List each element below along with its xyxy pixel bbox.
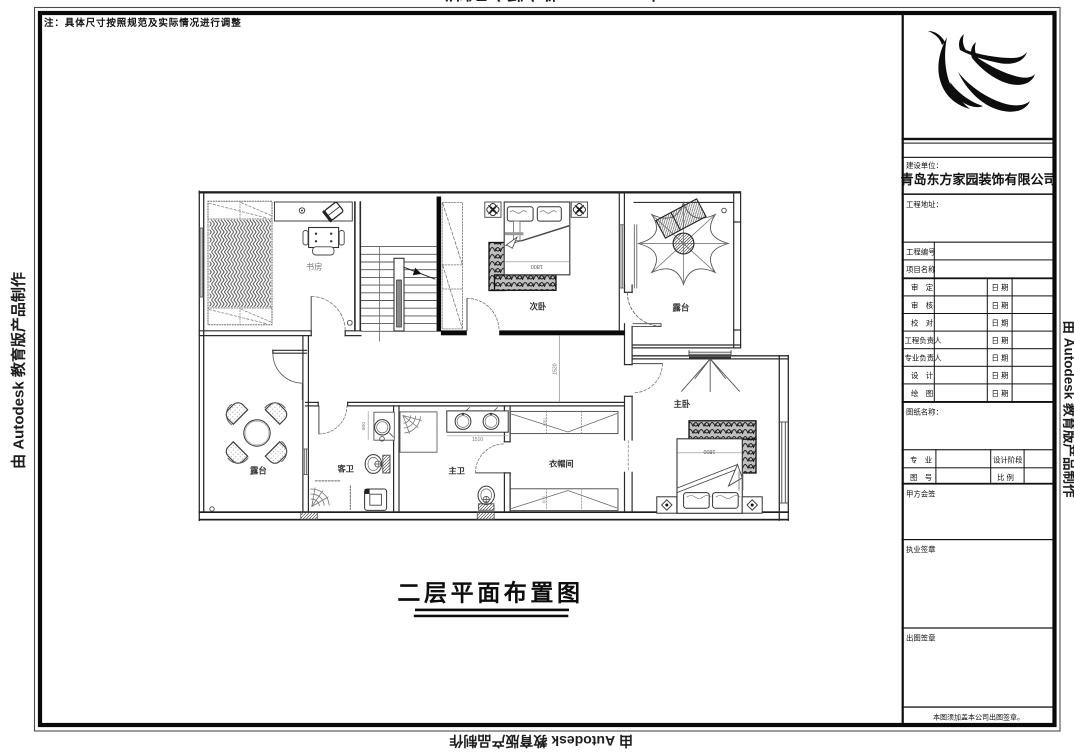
svg-text:600: 600	[542, 418, 547, 426]
svg-text:工程编号: 工程编号	[906, 248, 936, 257]
svg-text:工程地址：: 工程地址：	[906, 200, 943, 209]
svg-text:建设单位：: 建设单位：	[906, 161, 943, 170]
svg-text:审 定: 审 定	[911, 283, 934, 292]
svg-text:1800: 1800	[531, 263, 543, 269]
svg-text:1520: 1520	[553, 363, 559, 374]
svg-text:日 期: 日 期	[992, 371, 1009, 380]
svg-text:主卧: 主卧	[674, 399, 691, 409]
svg-text:1800: 1800	[704, 448, 716, 454]
svg-text:执业签章: 执业签章	[906, 545, 936, 554]
svg-text:日 期: 日 期	[992, 301, 1009, 310]
svg-text:设 计: 设 计	[911, 371, 934, 380]
svg-text:图纸名称：: 图纸名称：	[906, 408, 943, 417]
svg-text:二层平面布置图: 二层平面布置图	[397, 580, 583, 606]
svg-text:项目名称: 项目名称	[906, 265, 936, 274]
svg-text:1510: 1510	[472, 437, 483, 443]
svg-text:工程负责人: 工程负责人	[905, 336, 943, 345]
svg-text:600: 600	[542, 495, 547, 503]
svg-text:注：具体尺寸按照规范及实际情况进行调整: 注：具体尺寸按照规范及实际情况进行调整	[44, 17, 242, 29]
svg-text:书房: 书房	[306, 262, 322, 272]
svg-text:露台: 露台	[673, 303, 690, 313]
svg-text:出图签章: 出图签章	[906, 634, 936, 643]
svg-text:日 期: 日 期	[992, 336, 1009, 345]
svg-text:日 期: 日 期	[992, 354, 1009, 363]
svg-text:本图须加盖本公司出图签章。: 本图须加盖本公司出图签章。	[933, 713, 1024, 722]
svg-text:校 对: 校 对	[911, 318, 934, 327]
svg-text:日 期: 日 期	[992, 389, 1009, 398]
svg-text:衣帽间: 衣帽间	[549, 459, 574, 469]
svg-text:图 号: 图 号	[910, 473, 932, 482]
svg-text:次卧: 次卧	[530, 302, 547, 312]
svg-text:甲方会签: 甲方会签	[906, 490, 936, 499]
svg-text:日 期: 日 期	[992, 283, 1009, 292]
svg-text:800: 800	[361, 422, 367, 430]
svg-text:设计阶段: 设计阶段	[993, 456, 1023, 465]
svg-text:日 期: 日 期	[992, 318, 1009, 327]
svg-text:审 核: 审 核	[911, 301, 934, 310]
svg-text:绘 图: 绘 图	[911, 389, 933, 398]
svg-text:专 业: 专 业	[910, 456, 932, 465]
svg-text:主卫: 主卫	[449, 466, 465, 476]
svg-text:专业负责人: 专业负责人	[905, 354, 943, 363]
svg-text:客卫: 客卫	[337, 464, 354, 474]
svg-text:露台: 露台	[250, 466, 267, 476]
svg-text:青岛东方家园装饰有限公司: 青岛东方家园装饰有限公司	[900, 172, 1056, 187]
svg-text:比 例: 比 例	[997, 473, 1014, 482]
